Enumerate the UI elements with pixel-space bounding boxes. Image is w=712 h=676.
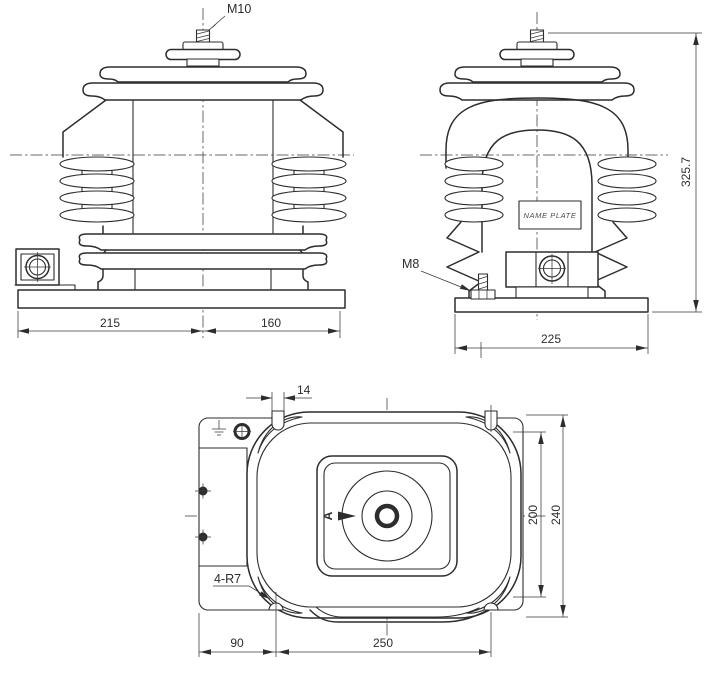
fin: [598, 174, 656, 188]
fin: [60, 208, 134, 222]
side-left-fin-stack: [445, 157, 503, 222]
fin: [445, 174, 503, 188]
arrow: [18, 328, 29, 334]
top-shed-upper: [100, 67, 306, 82]
left-foot: [98, 269, 103, 290]
bushing-circle-middle: [362, 491, 412, 541]
left-shoulder: [63, 100, 106, 157]
cap-neck: [187, 59, 219, 66]
arrow: [261, 395, 272, 401]
fin: [445, 208, 503, 222]
right-fin-stack: [272, 157, 346, 222]
arrow: [200, 649, 211, 655]
arrow: [560, 416, 566, 427]
arrow: [479, 649, 490, 655]
fin: [598, 208, 656, 222]
arrow: [263, 649, 274, 655]
fin: [60, 191, 134, 205]
fin: [60, 157, 134, 171]
bottom-shed-upper: [79, 234, 326, 250]
fin: [60, 174, 134, 188]
front-extension-lines: [18, 311, 340, 338]
slot-top-left: [272, 411, 284, 430]
dim-225: 225: [541, 332, 561, 346]
bolt-nut: [471, 290, 495, 299]
bottom-shed-lower: [79, 253, 326, 269]
fin: [272, 208, 346, 222]
arrow: [560, 605, 566, 616]
side-right-fin-stack: [598, 157, 656, 222]
top-cap-insulator: [166, 42, 240, 66]
arrow: [284, 395, 295, 401]
side-base-plate: [455, 298, 648, 312]
dim-325-7: 325.7: [679, 157, 693, 187]
fin: [272, 191, 346, 205]
terminal-pedestal: [516, 287, 588, 298]
m8-leader-arrow: [460, 284, 471, 291]
slot-label: 4-R7: [214, 572, 241, 586]
arrow: [693, 300, 699, 311]
fin: [272, 157, 346, 171]
dim-240: 240: [549, 505, 563, 525]
arrow: [636, 345, 647, 351]
arrow: [328, 328, 339, 334]
side-view: NAME PLATE M8: [402, 30, 702, 358]
arrow: [456, 345, 467, 351]
cap-bulge: [166, 50, 240, 60]
dim-160: 160: [261, 316, 281, 330]
arrow: [278, 649, 289, 655]
fin: [598, 157, 656, 171]
m10-leader-arrow: [208, 22, 218, 31]
top-terminal-stud: [197, 30, 210, 42]
dim-200: 200: [526, 505, 540, 525]
fin: [445, 157, 503, 171]
front-view: M10 215 160: [15, 2, 346, 338]
fin: [272, 174, 346, 188]
dim-90: 90: [230, 636, 244, 650]
dim-250: 250: [373, 636, 393, 650]
fin: [445, 191, 503, 205]
m8-callout: M8: [402, 257, 471, 291]
side-terminal-box: [506, 252, 598, 298]
front-dimensions: 215 160: [18, 311, 340, 338]
top-shed-lower: [83, 83, 323, 100]
drawing-sheet: M10 215 160: [0, 0, 712, 676]
technical-drawing: M10 215 160: [0, 0, 712, 676]
cap-bulge: [500, 50, 574, 60]
top-shed-upper: [455, 67, 620, 82]
m10-callout: M10: [208, 2, 251, 31]
nameplate: NAME PLATE: [519, 201, 581, 229]
m10-label: M10: [227, 2, 251, 16]
side-top-stud: [500, 30, 574, 66]
side-width-dimension: 225: [455, 314, 648, 358]
dim-215: 215: [100, 316, 120, 330]
dim-14: 14: [297, 383, 311, 397]
cap-neck: [521, 59, 553, 66]
arrow: [538, 585, 544, 596]
nameplate-text: NAME PLATE: [524, 211, 577, 220]
arrow: [693, 34, 699, 45]
fin: [598, 191, 656, 205]
arrow: [538, 433, 544, 444]
left-fin-stack: [60, 157, 134, 222]
right-shoulder: [300, 100, 343, 157]
right-foot: [303, 269, 308, 290]
view-arrow-label: A: [321, 511, 335, 520]
base-plate: [18, 290, 345, 308]
front-terminal-box: [15, 249, 75, 290]
plan-view: A 4-R7: [185, 383, 568, 657]
arrow: [191, 328, 202, 334]
m8-label: M8: [402, 257, 419, 271]
arrow: [205, 328, 216, 334]
